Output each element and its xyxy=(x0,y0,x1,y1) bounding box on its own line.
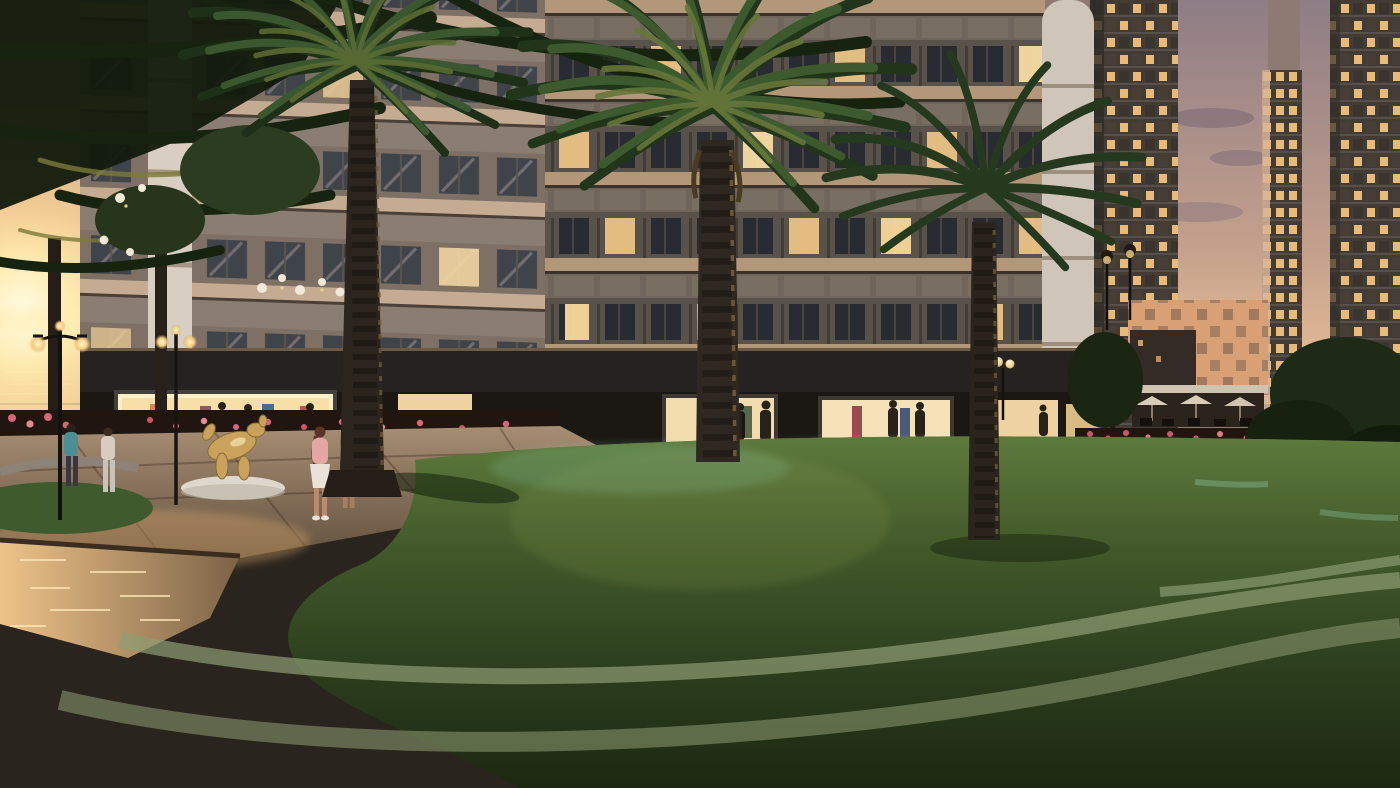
illustration-stage xyxy=(0,0,1400,788)
cafe-pavilion xyxy=(1128,385,1268,427)
scene-illustration xyxy=(0,0,1400,788)
